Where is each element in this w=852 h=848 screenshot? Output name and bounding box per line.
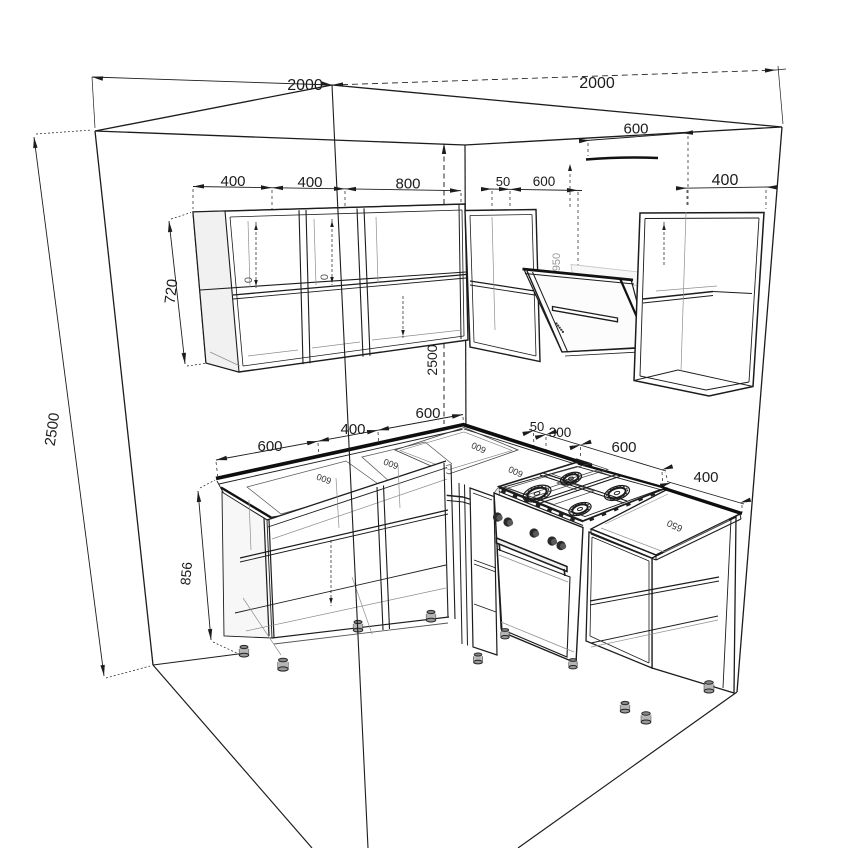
svg-text:600: 600 [623,121,648,138]
svg-text:2000: 2000 [579,75,615,92]
svg-text:2500: 2500 [424,344,440,375]
svg-text:50: 50 [496,174,510,189]
svg-text:0: 0 [243,277,255,283]
svg-text:50: 50 [530,419,544,434]
svg-text:0: 0 [319,274,331,280]
svg-text:400: 400 [693,469,718,486]
svg-text:400: 400 [297,174,322,191]
svg-text:950: 950 [551,253,563,271]
svg-text:400: 400 [712,172,739,189]
svg-text:600: 600 [415,405,440,422]
svg-text:400: 400 [220,173,245,190]
svg-text:800: 800 [395,176,420,193]
svg-text:400: 400 [340,421,365,438]
svg-text:856: 856 [177,561,195,586]
svg-text:2000: 2000 [287,77,323,94]
svg-text:300: 300 [549,425,572,440]
svg-text:600: 600 [533,174,556,189]
svg-text:600: 600 [611,439,636,456]
svg-text:600: 600 [257,438,282,455]
svg-text:720: 720 [162,278,182,305]
